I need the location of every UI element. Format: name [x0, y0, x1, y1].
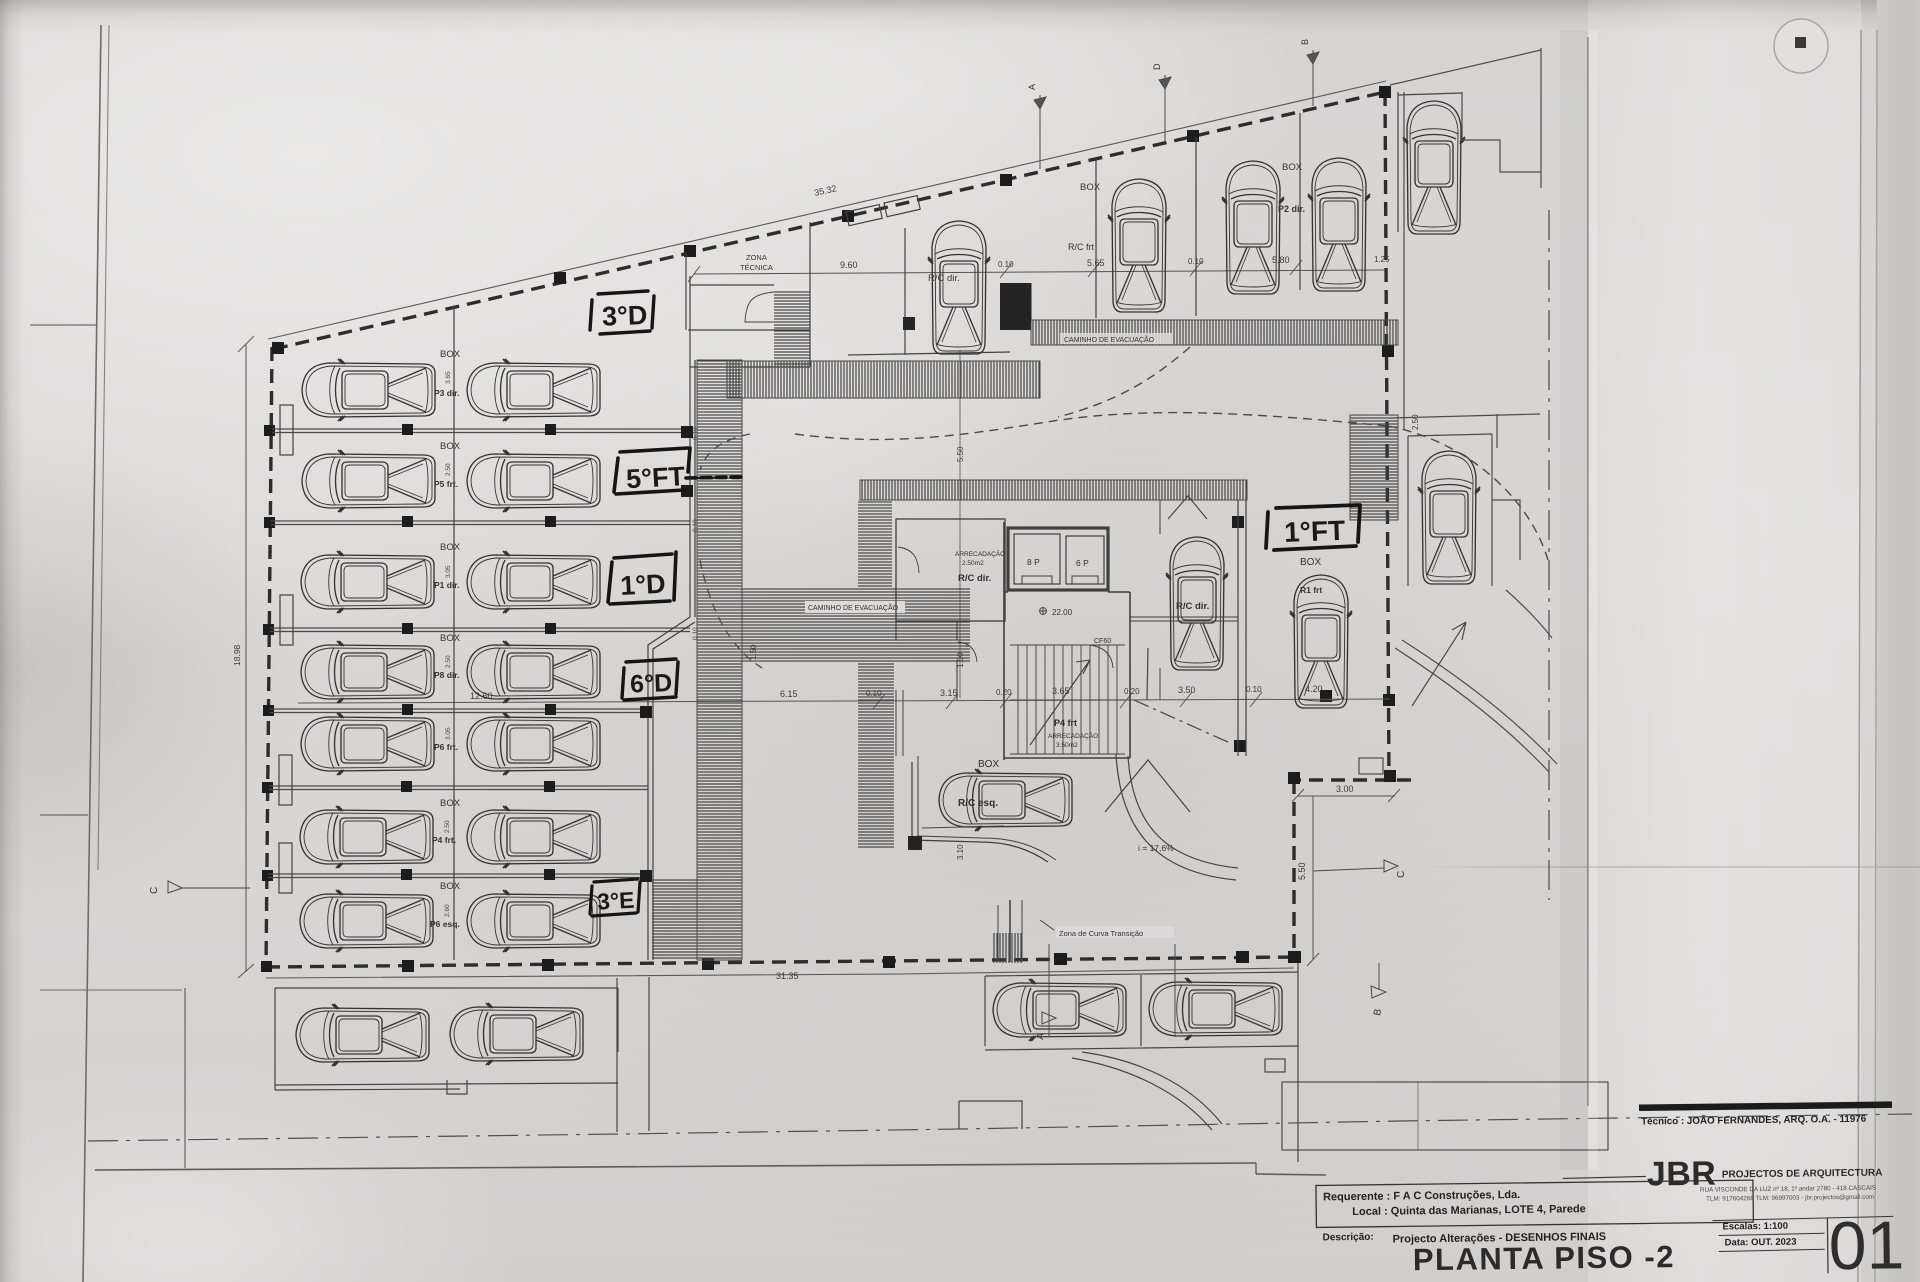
- svg-text:RUA VISCONDE DA LUZ nº 18, 1º: RUA VISCONDE DA LUZ nº 18, 1º andar 2780…: [1700, 1185, 1876, 1194]
- svg-text:BOX: BOX: [440, 542, 461, 553]
- svg-text:4.20: 4.20: [1305, 684, 1323, 694]
- svg-text:0.10: 0.10: [998, 260, 1014, 269]
- svg-text:BOX: BOX: [440, 881, 461, 892]
- svg-text:9.60: 9.60: [840, 260, 858, 270]
- svg-text:35.32: 35.32: [813, 183, 837, 198]
- svg-text:P2 dir.: P2 dir.: [1278, 204, 1305, 214]
- svg-text:Descrição:: Descrição:: [1322, 1232, 1373, 1244]
- svg-text:R/C frt: R/C frt: [1068, 242, 1094, 252]
- svg-text:Data: OUT. 2023: Data: OUT. 2023: [1725, 1237, 1797, 1249]
- svg-text:Local : Quinta das Marianas, L: Local : Quinta das Marianas, LOTE 4, Par…: [1352, 1203, 1586, 1218]
- svg-text:ARRECADAÇÃO: ARRECADAÇÃO: [1048, 731, 1098, 740]
- svg-text:3.05: 3.05: [445, 727, 452, 740]
- svg-text:2.60: 2.60: [444, 904, 451, 917]
- svg-text:31.35: 31.35: [776, 971, 799, 981]
- svg-text:BOX: BOX: [440, 798, 461, 809]
- svg-text:Técnico : JOÃO FERNANDES, ARQ.: Técnico : JOÃO FERNANDES, ARQ. O.A. - 11…: [1641, 1114, 1867, 1128]
- svg-text:P8 dir.: P8 dir.: [434, 670, 460, 680]
- svg-text:R/C dir.: R/C dir.: [1176, 601, 1209, 612]
- svg-text:B: B: [1300, 39, 1310, 45]
- svg-text:P4 frt.: P4 frt.: [432, 835, 456, 845]
- svg-text:BOX: BOX: [440, 441, 461, 452]
- svg-text:TÉCNICA: TÉCNICA: [740, 263, 773, 272]
- svg-text:3.10: 3.10: [956, 844, 965, 860]
- svg-text:P4 frt: P4 frt: [1054, 718, 1077, 728]
- svg-text:C: C: [149, 887, 160, 894]
- svg-text:BOX: BOX: [440, 633, 461, 644]
- svg-text:D: D: [1152, 63, 1162, 70]
- svg-text:3.65: 3.65: [1052, 686, 1070, 696]
- svg-text:0.20: 0.20: [1124, 687, 1140, 696]
- svg-text:B: B: [1372, 1008, 1384, 1017]
- svg-text:R/C dir.: R/C dir.: [958, 573, 991, 584]
- svg-text:5.50: 5.50: [956, 446, 965, 462]
- svg-text:P1 dir.: P1 dir.: [434, 580, 460, 590]
- svg-text:3.50: 3.50: [1178, 685, 1196, 695]
- svg-text:8 P: 8 P: [1027, 557, 1040, 567]
- svg-text:ARRECADAÇÃO: ARRECADAÇÃO: [955, 549, 1005, 558]
- svg-text:BOX: BOX: [978, 759, 999, 770]
- svg-text:BOX: BOX: [1300, 557, 1321, 568]
- svg-text:Requerente : F A C Construçõe: Requerente : F A C Construções, Lda.: [1323, 1189, 1520, 1203]
- svg-text:6°D: 6°D: [630, 669, 673, 698]
- svg-text:5.50: 5.50: [1297, 862, 1307, 880]
- svg-text:18.98: 18.98: [232, 644, 242, 666]
- svg-text:5°FT: 5°FT: [625, 461, 686, 494]
- svg-text:3.05: 3.05: [445, 565, 452, 578]
- svg-text:i = 17,6%: i = 17,6%: [1138, 843, 1174, 853]
- svg-text:0.10: 0.10: [1246, 685, 1262, 694]
- svg-text:3.50m2: 3.50m2: [1056, 742, 1078, 749]
- svg-text:Zona de Curva Transição: Zona de Curva Transição: [1059, 929, 1143, 938]
- svg-text:01: 01: [1828, 1207, 1905, 1282]
- svg-text:6 P: 6 P: [1076, 558, 1089, 568]
- svg-text:ZONA: ZONA: [746, 253, 767, 262]
- svg-text:P6 esq.: P6 esq.: [430, 919, 460, 929]
- svg-text:P5 frt.: P5 frt.: [434, 479, 458, 489]
- svg-text:A: A: [1035, 1032, 1047, 1041]
- svg-text:6.15: 6.15: [780, 689, 798, 699]
- svg-text:3°E: 3°E: [596, 887, 635, 915]
- svg-text:3.15: 3.15: [940, 688, 958, 698]
- svg-text:5.80: 5.80: [1272, 255, 1290, 265]
- svg-text:2.50: 2.50: [445, 463, 452, 476]
- svg-text:TLM: 917604268 TLM: 96997003 -: TLM: 917604268 TLM: 96997003 - jbr.proje…: [1706, 1194, 1874, 1203]
- svg-text:PROJECTOS DE ARQUITECTURA: PROJECTOS DE ARQUITECTURA: [1722, 1168, 1883, 1181]
- svg-text:P3 dir.: P3 dir.: [434, 388, 460, 398]
- svg-text:PLANTA PISO -2: PLANTA PISO -2: [1413, 1239, 1676, 1277]
- svg-text:BOX: BOX: [1282, 162, 1303, 173]
- svg-text:BOX: BOX: [1080, 182, 1101, 193]
- svg-text:Escalas: 1:100: Escalas: 1:100: [1722, 1221, 1788, 1233]
- svg-text:A: A: [1027, 84, 1037, 90]
- svg-text:3°D: 3°D: [602, 300, 648, 332]
- svg-text:CF60: CF60: [1094, 638, 1111, 645]
- svg-text:1°D: 1°D: [620, 569, 667, 601]
- svg-text:2.50: 2.50: [444, 820, 451, 833]
- svg-text:CAMINHO DE EVACUAÇÃO: CAMINHO DE EVACUAÇÃO: [808, 603, 899, 612]
- svg-text:2.50m2: 2.50m2: [962, 560, 984, 567]
- svg-text:3.00: 3.00: [1336, 784, 1354, 794]
- svg-text:2.50: 2.50: [445, 655, 452, 668]
- svg-text:P6 frt.: P6 frt.: [434, 742, 458, 752]
- svg-text:R/C esq.: R/C esq.: [958, 798, 998, 809]
- svg-text:1.25: 1.25: [1374, 255, 1390, 264]
- svg-text:2.50: 2.50: [1411, 414, 1420, 430]
- svg-text:22.00: 22.00: [1052, 608, 1073, 617]
- svg-text:CAMINHO DE EVACUAÇÃO: CAMINHO DE EVACUAÇÃO: [1064, 335, 1155, 344]
- svg-text:BOX: BOX: [440, 349, 461, 360]
- svg-text:C: C: [1396, 871, 1407, 878]
- svg-text:1°FT: 1°FT: [1284, 515, 1346, 548]
- svg-text:3.65: 3.65: [445, 371, 452, 384]
- svg-text:R1 frt: R1 frt: [1300, 585, 1322, 595]
